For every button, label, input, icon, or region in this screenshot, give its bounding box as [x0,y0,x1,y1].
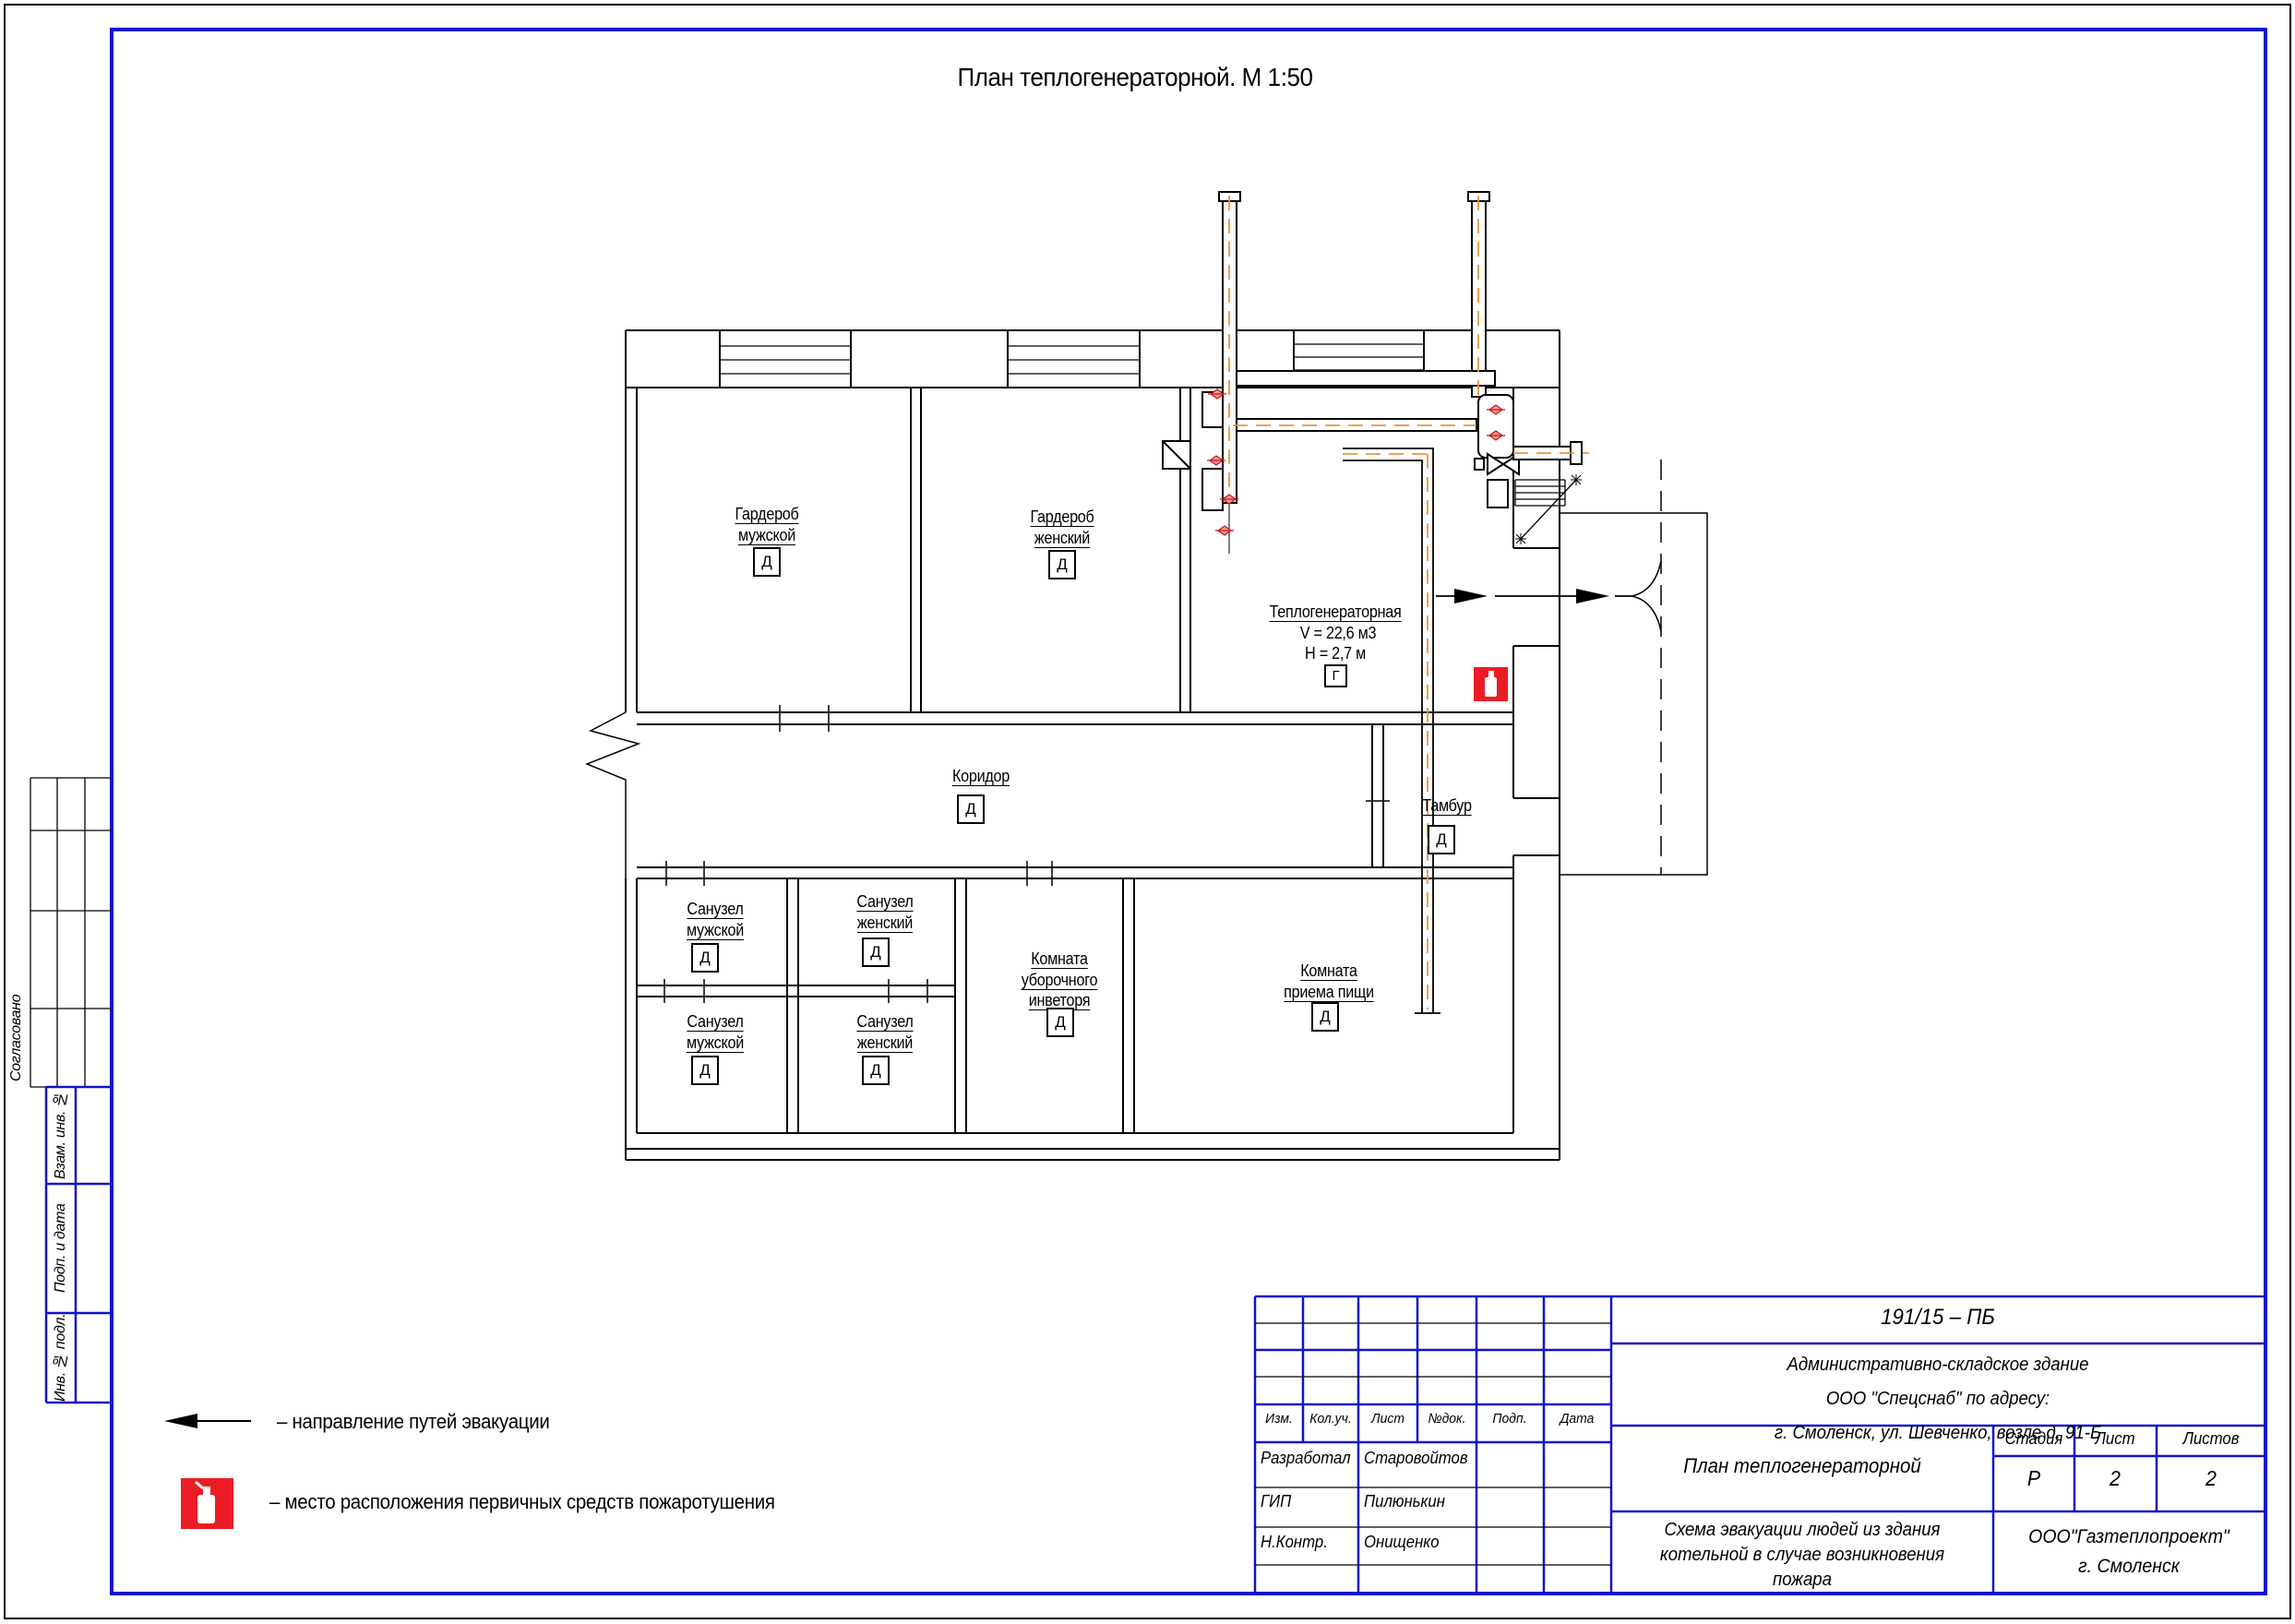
legend-evacuation-text: – направление путей эвакуации [277,1410,550,1434]
organization: ООО"Газтеплопроект" г. Смоленск [2028,1522,2229,1581]
role-gip: ГИП [1261,1492,1291,1511]
room-category-uborochniy-inventar: Д [1046,1008,1074,1037]
side-label-podp-data: Подп. и дата [46,1186,76,1311]
room-category-sanuzel-zh-top: Д [862,937,890,967]
legend-fire-extinguisher-icon [181,1478,233,1529]
evacuation-arrows [1436,589,1632,603]
room-volume-teplogeneratornaya: V = 22,6 м3 [1300,623,1376,644]
sheet-label: Лист [2095,1429,2134,1449]
exterior-platform [1560,460,1707,875]
room-label-garderob-muzhskoy: Гардероб мужской [735,504,798,545]
role-developer: Разработал [1261,1449,1351,1468]
role-ncontrol: Н.Контр. [1261,1533,1328,1552]
room-label-garderob-zhenskiy: Гардероб женский [1030,507,1094,548]
side-label-agreed: Согласовано [4,989,30,1087]
name-developer: Старовойтов [1364,1449,1468,1468]
room-label-uborochniy-inventar: Комната уборочного инветоря [1022,949,1098,1011]
sheet-value: 2 [2110,1466,2121,1491]
name-gip: Пилюнькин [1364,1492,1445,1511]
room-label-teplogeneratornaya: Теплогенераторная [1269,602,1401,623]
side-label-inv-podl: Инв. № подл. [46,1315,76,1401]
room-label-sanuzel-m-top: Санузел мужской [687,899,744,940]
fire-extinguisher-plan-icon [1474,667,1508,701]
title-block-sheet-title: План теплогенераторной [1683,1454,1921,1478]
room-label-sanuzel-zh-top: Санузел женский [856,891,913,933]
name-ncontrol: Онищенко [1364,1533,1440,1552]
sheet-title: План теплогенераторной. М 1:50 [958,63,1313,92]
col-kol: Кол.уч. [1309,1411,1351,1427]
col-list: Лист [1371,1411,1404,1427]
room-category-priem-pischi: Д [1311,1002,1339,1032]
wall-break-symbol [587,712,639,878]
legend-extinguisher-text: – место расположения первичных средств п… [269,1490,775,1514]
room-category-koridor: Д [957,794,985,824]
room-category-teplogeneratornaya: Г [1324,664,1347,687]
col-podp: Подп. [1492,1411,1526,1427]
col-ndok: №док. [1428,1411,1465,1427]
room-category-garderob-muzhskoy: Д [753,547,781,577]
sheets-value: 2 [2205,1466,2217,1491]
room-label-sanuzel-zh-bottom: Санузел женский [856,1011,913,1053]
room-label-sanuzel-m-bottom: Санузел мужской [687,1011,744,1053]
room-category-sanuzel-m-bottom: Д [691,1056,719,1085]
gas-pipe [1343,448,1440,1013]
stage-value: Р [2027,1466,2040,1491]
room-label-koridor: Коридор [952,766,1010,787]
room-category-tambur: Д [1428,825,1455,854]
col-data: Дата [1560,1411,1595,1427]
room-label-priem-pischi: Комната приема пищи [1284,961,1374,1002]
sheets-label: Листов [2183,1429,2240,1449]
col-izm: Изм. [1265,1411,1293,1427]
scheme-title: Схема эвакуации людей из здания котельно… [1660,1518,1944,1593]
drawing-sheet: { "sheet": { "title": "План теплогенерат… [0,0,2295,1624]
room-category-sanuzel-m-top: Д [691,943,719,973]
side-label-vzam-inv: Взам. инв. № [46,1089,76,1182]
room-label-tambur: Тамбур [1422,795,1471,817]
stage-label: Стадия [2005,1429,2063,1449]
room-category-garderob-zhenskiy: Д [1048,550,1076,579]
room-height-teplogeneratornaya: Н = 2,7 м [1305,643,1366,664]
room-category-sanuzel-zh-bottom: Д [862,1056,890,1085]
legend-evacuation-arrow-icon [164,1414,251,1428]
doc-number: 191/15 – ПБ [1881,1305,1995,1331]
